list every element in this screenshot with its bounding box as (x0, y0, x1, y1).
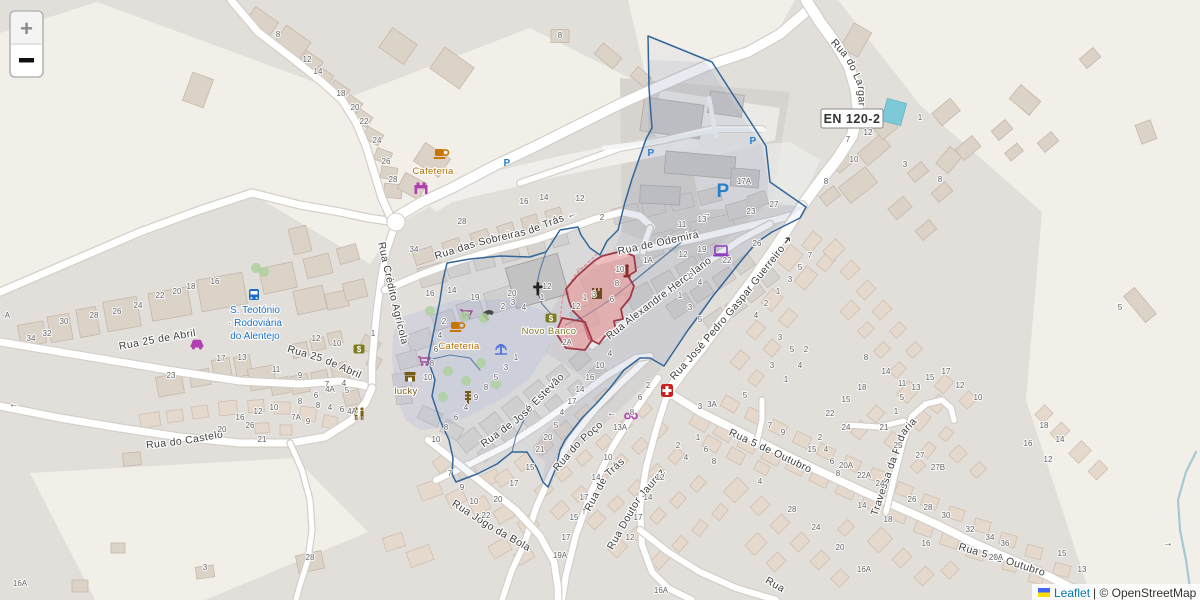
svg-text:6: 6 (340, 405, 345, 414)
svg-text:5: 5 (900, 393, 905, 402)
svg-text:12: 12 (956, 381, 965, 390)
svg-text:5: 5 (554, 421, 559, 430)
svg-text:4: 4 (560, 408, 565, 417)
svg-text:10: 10 (974, 393, 983, 402)
svg-text:8: 8 (276, 30, 281, 39)
svg-text:17: 17 (217, 354, 226, 363)
svg-text:26: 26 (382, 157, 391, 166)
svg-text:P: P (504, 158, 511, 169)
svg-text:8: 8 (938, 175, 943, 184)
svg-text:→: → (703, 209, 711, 218)
svg-text:4A: 4A (325, 385, 335, 394)
svg-text:16: 16 (922, 539, 931, 548)
svg-text:4: 4 (698, 278, 703, 287)
svg-text:22A: 22A (857, 471, 872, 480)
svg-text:12: 12 (656, 473, 665, 482)
svg-text:3: 3 (903, 160, 908, 169)
svg-text:28: 28 (389, 175, 398, 184)
svg-text:12: 12 (864, 128, 873, 137)
svg-text:$: $ (549, 314, 554, 323)
svg-text:10: 10 (470, 497, 479, 506)
svg-text:6: 6 (434, 345, 439, 354)
svg-text:2: 2 (764, 299, 769, 308)
svg-text:4: 4 (824, 445, 829, 454)
svg-text:4: 4 (758, 477, 763, 486)
svg-text:P: P (750, 136, 757, 147)
svg-text:24: 24 (876, 479, 885, 488)
svg-text:4: 4 (798, 361, 803, 370)
svg-text:4: 4 (684, 453, 689, 462)
svg-text:2: 2 (442, 317, 447, 326)
svg-text:4: 4 (328, 403, 333, 412)
svg-text:14: 14 (1056, 435, 1065, 444)
svg-text:9: 9 (306, 417, 311, 426)
svg-text:+: + (20, 16, 33, 41)
svg-text:3: 3 (511, 298, 516, 307)
svg-text:6: 6 (830, 457, 835, 466)
svg-text:28: 28 (306, 553, 315, 562)
svg-text:34: 34 (986, 533, 995, 542)
svg-text:13: 13 (912, 383, 921, 392)
svg-text:14: 14 (858, 501, 867, 510)
svg-text:24: 24 (373, 136, 382, 145)
svg-text:12: 12 (576, 194, 585, 203)
svg-text:Cafeteria: Cafeteria (412, 166, 454, 177)
svg-text:20: 20 (836, 543, 845, 552)
svg-text:26: 26 (753, 239, 762, 248)
svg-text:26: 26 (246, 421, 255, 430)
svg-text:20A: 20A (989, 553, 1004, 562)
svg-text:14: 14 (576, 385, 585, 394)
svg-text:5: 5 (798, 263, 803, 272)
svg-text:24: 24 (134, 301, 143, 310)
svg-text:8: 8 (558, 31, 563, 40)
svg-text:↑: ↑ (581, 506, 586, 517)
svg-text:12: 12 (254, 407, 263, 416)
svg-text:15: 15 (808, 445, 817, 454)
svg-text:3A: 3A (707, 400, 717, 409)
svg-text:30: 30 (60, 317, 69, 326)
svg-text:14: 14 (592, 473, 601, 482)
svg-text:4: 4 (754, 311, 759, 320)
svg-text:11: 11 (678, 220, 687, 229)
svg-text:12: 12 (303, 55, 312, 64)
svg-text:14: 14 (448, 286, 457, 295)
svg-text:27: 27 (916, 451, 925, 460)
svg-text:13: 13 (238, 353, 247, 362)
svg-text:27: 27 (770, 200, 779, 209)
svg-text:6: 6 (638, 393, 643, 402)
svg-text:14: 14 (644, 493, 653, 502)
svg-text:1: 1 (678, 291, 683, 300)
svg-text:16A: 16A (857, 565, 872, 574)
svg-text:16: 16 (211, 277, 220, 286)
svg-text:16A: 16A (654, 586, 669, 595)
svg-text:1: 1 (894, 407, 899, 416)
svg-text:10: 10 (850, 155, 859, 164)
svg-text:16: 16 (1024, 439, 1033, 448)
svg-text:15: 15 (926, 373, 935, 382)
svg-text:9: 9 (474, 393, 479, 402)
svg-text:11: 11 (898, 379, 907, 388)
svg-text:S. Teotónio: S. Teotónio (230, 305, 280, 316)
svg-text:15: 15 (1058, 549, 1067, 558)
svg-text:2: 2 (804, 345, 809, 354)
svg-text:8: 8 (444, 423, 449, 432)
svg-text:3: 3 (504, 363, 509, 372)
svg-text:19: 19 (698, 245, 707, 254)
svg-text:12: 12 (679, 250, 688, 259)
svg-text:12: 12 (572, 302, 581, 311)
svg-text:1: 1 (583, 293, 588, 302)
svg-text:20: 20 (173, 287, 182, 296)
svg-text:3: 3 (770, 361, 775, 370)
svg-text:26: 26 (908, 495, 917, 504)
svg-text:3: 3 (688, 303, 693, 312)
svg-text:16: 16 (586, 373, 595, 382)
svg-text:28: 28 (924, 503, 933, 512)
svg-text:4: 4 (342, 379, 347, 388)
svg-text:4: 4 (522, 303, 527, 312)
svg-text:10: 10 (604, 453, 613, 462)
svg-text:20: 20 (544, 433, 553, 442)
svg-text:4: 4 (608, 349, 613, 358)
svg-text:17: 17 (510, 479, 519, 488)
svg-text:6: 6 (610, 295, 615, 304)
svg-text:1: 1 (776, 287, 781, 296)
svg-text:22: 22 (826, 409, 835, 418)
svg-text:2A: 2A (562, 338, 572, 347)
svg-text:12: 12 (626, 533, 635, 542)
svg-text:3: 3 (592, 290, 597, 299)
svg-text:34: 34 (410, 245, 419, 254)
svg-text:22: 22 (482, 511, 491, 520)
svg-text:22: 22 (723, 256, 732, 265)
svg-text:26: 26 (113, 307, 122, 316)
svg-text:12: 12 (312, 334, 321, 343)
svg-text:5: 5 (494, 373, 499, 382)
svg-text:19: 19 (471, 293, 480, 302)
svg-text:10: 10 (616, 265, 625, 274)
svg-text:16: 16 (520, 197, 529, 206)
svg-text:16A: 16A (13, 579, 28, 588)
svg-text:17A: 17A (737, 177, 752, 186)
svg-text:32: 32 (966, 525, 975, 534)
svg-text:5: 5 (698, 315, 703, 324)
svg-text:16: 16 (426, 289, 435, 298)
svg-text:5: 5 (743, 391, 748, 400)
svg-text:17: 17 (580, 493, 589, 502)
svg-text:18: 18 (1040, 421, 1049, 430)
svg-text:8: 8 (836, 469, 841, 478)
svg-text:7: 7 (768, 421, 773, 430)
svg-text:5: 5 (790, 345, 795, 354)
svg-text:→: → (1163, 538, 1173, 549)
svg-text:12: 12 (543, 282, 552, 291)
svg-text:EN 120-2: EN 120-2 (824, 112, 881, 126)
svg-text:7A: 7A (291, 413, 301, 422)
svg-text:30: 30 (942, 511, 951, 520)
svg-text:4: 4 (464, 403, 469, 412)
svg-text:3: 3 (698, 402, 703, 411)
svg-text:22: 22 (360, 117, 369, 126)
svg-text:15: 15 (842, 395, 851, 404)
svg-text:8: 8 (712, 457, 717, 466)
svg-text:2: 2 (676, 441, 681, 450)
svg-text:17: 17 (562, 533, 571, 542)
svg-text:20: 20 (508, 289, 517, 298)
svg-text:20: 20 (494, 495, 503, 504)
svg-text:10: 10 (596, 361, 605, 370)
svg-text:18: 18 (884, 515, 893, 524)
svg-text:13: 13 (1078, 565, 1087, 574)
svg-text:14: 14 (882, 367, 891, 376)
svg-text:18: 18 (337, 89, 346, 98)
svg-text:16: 16 (236, 413, 245, 422)
svg-text:←: ← (607, 408, 617, 419)
svg-text:11: 11 (272, 365, 281, 374)
svg-text:18: 18 (858, 383, 867, 392)
svg-text:8: 8 (824, 177, 829, 186)
svg-text:24: 24 (812, 523, 821, 532)
svg-text:3: 3 (788, 275, 793, 284)
svg-text:4: 4 (438, 331, 443, 340)
svg-text:21: 21 (880, 423, 889, 432)
svg-text:8: 8 (484, 383, 489, 392)
svg-text:19A: 19A (553, 551, 568, 560)
svg-text:18: 18 (187, 282, 196, 291)
svg-text:P: P (648, 148, 655, 159)
svg-text:9: 9 (781, 428, 786, 437)
svg-text:6: 6 (314, 391, 319, 400)
svg-text:10: 10 (432, 435, 441, 444)
svg-text:3: 3 (203, 563, 208, 572)
svg-text:14: 14 (314, 67, 323, 76)
svg-text:do Alentejo: do Alentejo (230, 331, 280, 342)
svg-text:7: 7 (846, 135, 851, 144)
svg-text:1A: 1A (643, 256, 653, 265)
svg-text:8: 8 (615, 279, 620, 288)
svg-text:2: 2 (818, 433, 823, 442)
svg-text:21: 21 (536, 445, 545, 454)
svg-text:1: 1 (918, 113, 923, 122)
svg-text:10: 10 (270, 403, 279, 412)
svg-text:17: 17 (942, 367, 951, 376)
svg-text:7: 7 (808, 251, 813, 260)
svg-text:Novo Banco: Novo Banco (522, 326, 577, 337)
svg-text:1: 1 (514, 353, 519, 362)
svg-text:23: 23 (167, 371, 176, 380)
svg-text:21: 21 (258, 435, 267, 444)
svg-text:20: 20 (218, 425, 227, 434)
svg-text:10: 10 (424, 373, 433, 382)
svg-text:23: 23 (747, 207, 756, 216)
svg-text:5: 5 (1118, 303, 1123, 312)
svg-text:32: 32 (43, 329, 52, 338)
svg-text:28: 28 (788, 505, 797, 514)
svg-text:1: 1 (371, 329, 376, 338)
svg-text:9: 9 (460, 483, 465, 492)
svg-text:17: 17 (634, 513, 643, 522)
svg-text:20A: 20A (839, 461, 854, 470)
svg-text:15: 15 (570, 513, 579, 522)
svg-text:1: 1 (784, 375, 789, 384)
svg-text:8: 8 (316, 401, 321, 410)
svg-text:Cafeteria: Cafeteria (438, 341, 480, 352)
svg-text:←: ← (9, 399, 19, 410)
svg-text:36: 36 (1001, 539, 1010, 548)
svg-text:13A: 13A (613, 423, 628, 432)
svg-text:17: 17 (568, 397, 577, 406)
svg-text:1: 1 (696, 433, 701, 442)
svg-text:7: 7 (448, 469, 453, 478)
svg-text:· Rodoviária: · Rodoviária (228, 318, 282, 329)
svg-text:lucky: lucky (394, 386, 417, 397)
svg-text:8: 8 (430, 359, 435, 368)
svg-text:12: 12 (1044, 455, 1053, 464)
svg-text:2: 2 (689, 272, 694, 281)
svg-text:2: 2 (501, 302, 506, 311)
svg-text:1: 1 (540, 293, 545, 302)
svg-text:8: 8 (864, 353, 869, 362)
svg-text:Leaflet: Leaflet (1054, 586, 1091, 600)
svg-text:14: 14 (540, 193, 549, 202)
svg-text:25: 25 (894, 441, 903, 450)
svg-text:3: 3 (778, 333, 783, 342)
svg-text:6: 6 (454, 413, 459, 422)
svg-text:P: P (717, 181, 730, 202)
svg-text:24: 24 (842, 423, 851, 432)
svg-text:-A: -A (2, 311, 11, 320)
svg-text:8: 8 (630, 408, 635, 417)
svg-text:10: 10 (333, 339, 342, 348)
svg-text:$: $ (357, 345, 362, 354)
svg-text:20: 20 (351, 103, 360, 112)
svg-text:4A: 4A (347, 407, 357, 416)
svg-text:6: 6 (704, 445, 709, 454)
svg-text:| © OpenStreetMap: | © OpenStreetMap (1093, 586, 1197, 600)
svg-text:34: 34 (27, 334, 36, 343)
svg-text:9: 9 (298, 371, 303, 380)
svg-text:28: 28 (90, 311, 99, 320)
svg-text:15: 15 (526, 463, 535, 472)
svg-text:8: 8 (298, 397, 303, 406)
svg-text:22: 22 (156, 291, 165, 300)
svg-text:2: 2 (646, 381, 651, 390)
svg-text:27B: 27B (931, 463, 945, 472)
svg-text:28: 28 (458, 217, 467, 226)
svg-text:2: 2 (600, 213, 605, 222)
